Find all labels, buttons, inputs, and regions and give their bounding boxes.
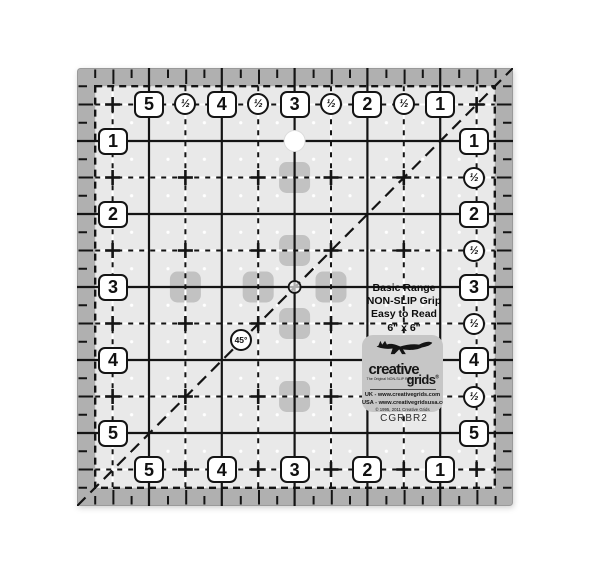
ruler-number-bottom: 1: [425, 456, 455, 483]
ruler-number-left: 5: [98, 420, 128, 447]
half-inch-mark-top: ½: [393, 93, 415, 115]
info-line-3: Easy to Read: [324, 308, 484, 321]
ruler-number-left: 4: [98, 347, 128, 374]
creative-grids-logo: creative The Original NON-SLIP Ruler gri…: [362, 335, 443, 412]
fox-icon: [372, 339, 434, 356]
ruler-number-bottom: 4: [207, 456, 237, 483]
ruler-number-left: 3: [98, 274, 128, 301]
half-inch-mark-right: ½: [463, 386, 485, 408]
brand-grids: grids®: [407, 372, 439, 387]
ruler-number-left: 2: [98, 201, 128, 228]
registered-mark: ®: [435, 375, 438, 381]
ruler-number-right: 2: [459, 201, 489, 228]
ruler-number-top: 5: [134, 91, 164, 118]
angle-45-badge: 45°: [230, 329, 252, 351]
half-inch-mark-top: ½: [320, 93, 342, 115]
product-photo-stage: Basic Range NON-SLIP Grip Easy to Read 6…: [0, 0, 600, 576]
info-line-4: 6" x 6": [324, 322, 484, 335]
ruler-number-top: 1: [425, 91, 455, 118]
logo-usa-url: USA - www.creativegridsusa.com: [362, 400, 443, 408]
hang-hole: [284, 131, 305, 152]
ruler-number-right: 4: [459, 347, 489, 374]
ruler-number-left: 1: [98, 128, 128, 155]
center-target: [289, 281, 301, 293]
logo-uk-url: UK - www.creativegrids.com: [362, 392, 443, 400]
ruler-number-bottom: 3: [280, 456, 310, 483]
ruler-number-right: 1: [459, 128, 489, 155]
brand-wordmark: creative The Original NON-SLIP Ruler gri…: [367, 361, 439, 388]
ruler-number-bottom: 5: [134, 456, 164, 483]
ruler-number-top: 4: [207, 91, 237, 118]
logo-copyright: © 1995, 2011 Creative Grids: [362, 407, 443, 412]
ruler-number-right: 5: [459, 420, 489, 447]
ruler-number-top: 2: [352, 91, 382, 118]
ruler-number-bottom: 2: [352, 456, 382, 483]
quilting-ruler: Basic Range NON-SLIP Grip Easy to Read 6…: [77, 68, 513, 506]
half-inch-mark-right: ½: [463, 167, 485, 189]
ruler-number-right: 3: [459, 274, 489, 301]
model-number: CGRBR2: [344, 413, 464, 424]
ruler-number-top: 3: [280, 91, 310, 118]
half-inch-mark-right: ½: [463, 240, 485, 262]
half-inch-mark-right: ½: [463, 313, 485, 335]
logo-divider: [370, 389, 436, 390]
